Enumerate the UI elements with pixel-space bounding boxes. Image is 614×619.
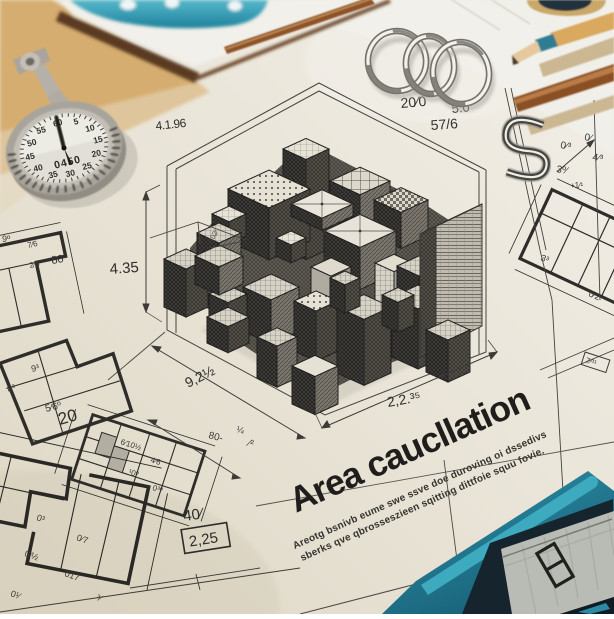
svg-text:57/6: 57/6 bbox=[430, 115, 459, 133]
svg-text:+1⁄¹: +1⁄¹ bbox=[570, 181, 583, 190]
svg-text:9º: 9º bbox=[2, 234, 11, 244]
svg-text:4.35: 4.35 bbox=[109, 259, 139, 278]
